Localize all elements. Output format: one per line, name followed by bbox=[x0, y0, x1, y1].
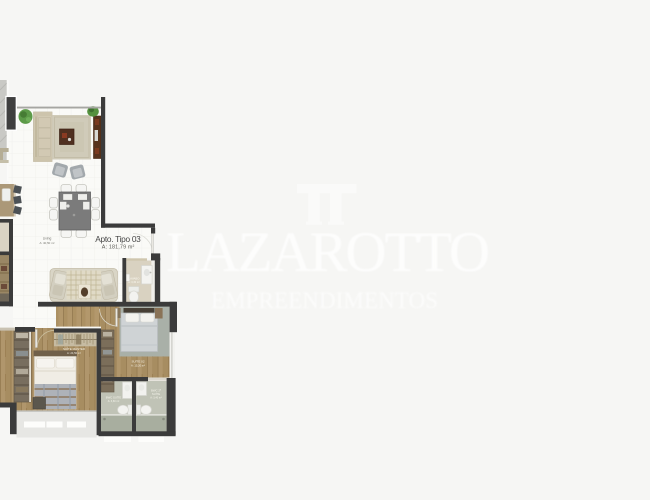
svg-text:A: 24,50 m²: A: 24,50 m² bbox=[67, 351, 81, 355]
svg-text:BWC SUÍTE: BWC SUÍTE bbox=[106, 396, 122, 400]
svg-text:A: 40,50 m²: A: 40,50 m² bbox=[40, 241, 55, 245]
svg-text:LAZAROTTO: LAZAROTTO bbox=[166, 221, 490, 284]
svg-text:A: 3,60 m²: A: 3,60 m² bbox=[108, 400, 120, 403]
svg-text:LAVABO: LAVABO bbox=[129, 277, 141, 281]
svg-text:A: 15,20 m²: A: 15,20 m² bbox=[131, 364, 145, 368]
svg-text:A: 3,30 m²: A: 3,30 m² bbox=[128, 281, 140, 284]
svg-text:SUÍTE: SUÍTE bbox=[152, 392, 160, 396]
svg-text:SUÍTE MASTER: SUÍTE MASTER bbox=[63, 347, 86, 351]
svg-text:SUÍTE 02: SUÍTE 02 bbox=[131, 360, 144, 364]
svg-text:Apto. Tipo 03: Apto. Tipo 03 bbox=[95, 234, 141, 244]
svg-text:EMPREENDIMENTOS: EMPREENDIMENTOS bbox=[211, 288, 438, 313]
svg-text:A: 3,40 m²: A: 3,40 m² bbox=[150, 397, 162, 400]
svg-text:A: 181,79 m²: A: 181,79 m² bbox=[102, 245, 135, 251]
